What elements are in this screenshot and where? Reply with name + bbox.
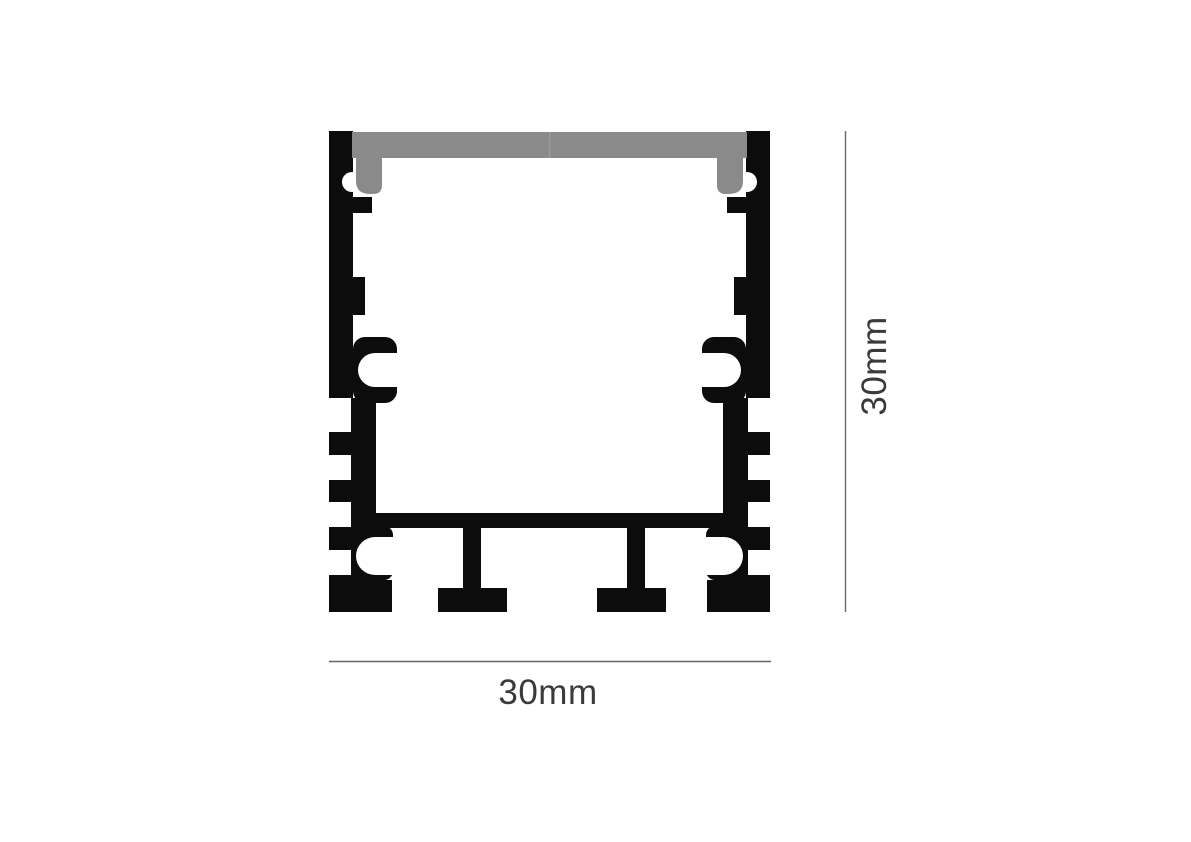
diagram-canvas: 30mm 30mm [0,0,1191,842]
profile-right-leg-foot [597,588,666,612]
profile-right-leg-stem [627,528,645,588]
diffuser-right-clip [717,150,743,194]
height-dimension-label: 30mm [855,316,894,415]
width-dimension-label: 30mm [498,673,597,712]
profile-left-leg-stem [463,528,481,588]
profile-left-leg-foot [438,588,507,612]
profile-cross-section-diagram: 30mm 30mm [0,0,1191,842]
diffuser-center-seam [549,132,550,158]
profile-bottom-web [353,513,746,528]
diffuser-left-clip [356,150,382,194]
